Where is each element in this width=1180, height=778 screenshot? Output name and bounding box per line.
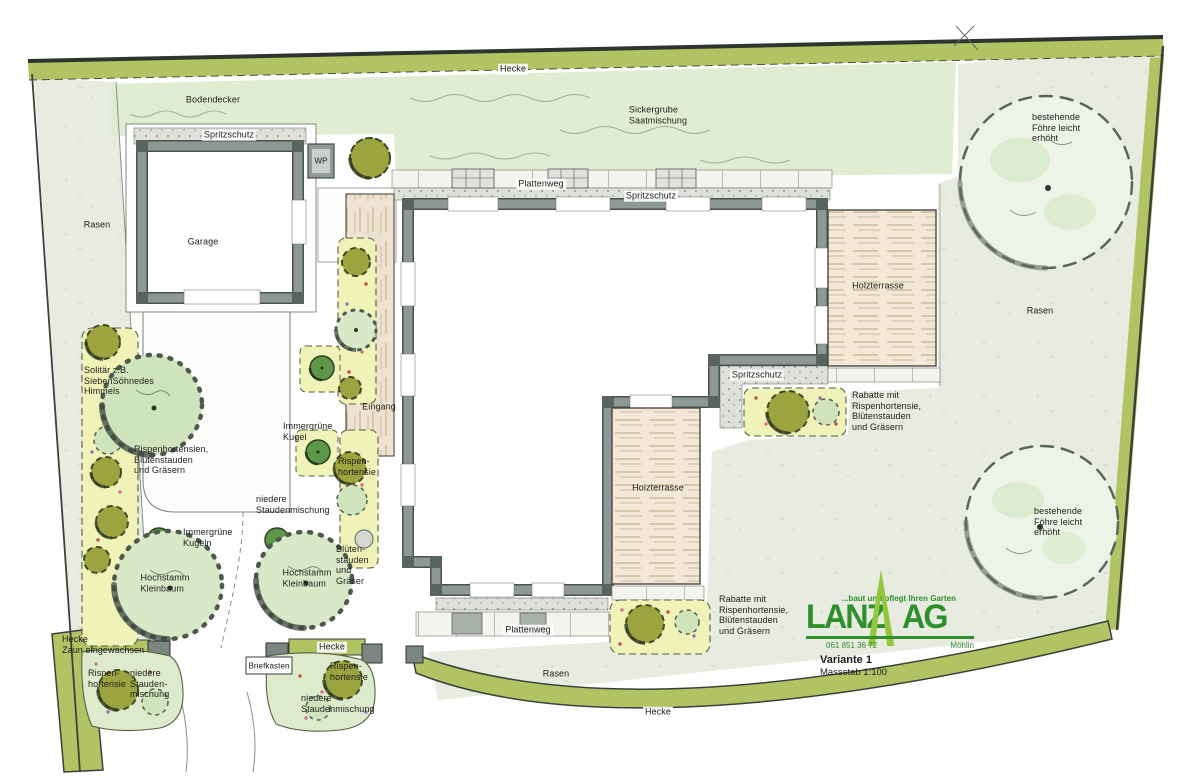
logo-contact: 061 851 36 72 Möhlin (806, 636, 974, 650)
wood-terrace-2 (612, 408, 700, 584)
scale-note: Massstab 1:100 (820, 667, 887, 678)
standard-tree-1 (114, 531, 222, 639)
garden-plan-drawing (0, 0, 1180, 778)
wood-terrace-1 (828, 210, 936, 366)
solitair-tree (102, 355, 202, 455)
logo-word-right: AG (902, 600, 947, 634)
existing-pine-bottom (966, 446, 1118, 598)
step-slab (452, 613, 482, 634)
garden-plan-sheet: HeckeBodendeckerSpritzschutzWPGarageRase… (0, 0, 1180, 778)
company-logo: ...baut und pflegt Ihren Garten LANZ AG … (806, 566, 956, 662)
garage-door-gap (184, 290, 260, 304)
mailbox-box (246, 657, 292, 674)
gate-post (406, 646, 423, 663)
variant-title: Variante 1 (820, 654, 887, 666)
logo-phone: 061 851 36 72 (826, 641, 877, 650)
garage-wall-ink (142, 146, 298, 298)
logo-wordmark: LANZ AG (806, 600, 947, 634)
gravel-strip-bottom (436, 598, 608, 610)
existing-pine-top (960, 96, 1132, 268)
step-slab (520, 613, 546, 634)
garage-side-gap (292, 200, 306, 244)
gate-post (362, 644, 382, 663)
logo-city: Möhlin (950, 641, 974, 650)
title-block: Variante 1 Massstab 1:100 (820, 654, 887, 678)
window-wells (452, 169, 696, 188)
logo-tree-icon (863, 568, 899, 646)
stone-sphere (355, 530, 373, 548)
standard-tree-2 (256, 532, 352, 628)
small-tree-west-bed (336, 310, 376, 350)
slab-path-bottom (416, 612, 612, 636)
